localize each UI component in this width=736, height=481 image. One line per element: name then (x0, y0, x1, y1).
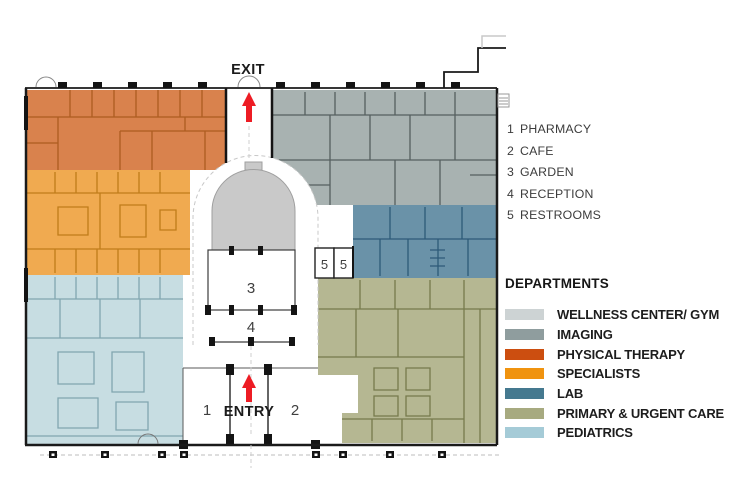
legend-label: SPECIALISTS (557, 366, 640, 381)
departments-legend: DEPARTMENTS WELLNESS CENTER/ GYM IMAGING… (505, 276, 724, 443)
legend-item-primary-urgent-care: PRIMARY & URGENT CARE (505, 403, 724, 423)
key-item-cafe: 2CAFE (507, 141, 601, 163)
region-primary-urgent-care (318, 278, 497, 443)
legend-label: IMAGING (557, 327, 613, 342)
key-label: CAFE (520, 144, 554, 158)
key-number: 4 (507, 184, 515, 206)
key-label: RECEPTION (520, 187, 594, 201)
room-number-restroom-b: 5 (340, 257, 347, 272)
room-number-reception: 4 (247, 319, 255, 336)
legend-label: PEDIATRICS (557, 425, 633, 440)
legend-swatch-pediatrics (505, 427, 544, 438)
region-pediatrics (27, 275, 183, 445)
key-item-reception: 4RECEPTION (507, 184, 601, 206)
key-number: 3 (507, 162, 515, 184)
legend-item-physical-therapy: PHYSICAL THERAPY (505, 344, 724, 364)
legend-label: PRIMARY & URGENT CARE (557, 406, 724, 421)
south-colonnade (40, 445, 500, 468)
room-number-restroom-a: 5 (321, 257, 328, 272)
legend-swatch-primary-urgent-care (505, 408, 544, 419)
legend-item-specialists: SPECIALISTS (505, 364, 724, 384)
region-specialists (27, 170, 190, 275)
key-item-restrooms: 5RESTROOMS (507, 205, 601, 227)
legend-item-lab: LAB (505, 384, 724, 404)
key-number: 1 (507, 119, 515, 141)
legend-item-wellness: WELLNESS CENTER/ GYM (505, 305, 724, 325)
room-number-garden: 3 (247, 280, 255, 297)
dome-apex-detail (245, 162, 262, 170)
entry-arrow-icon (242, 374, 256, 402)
legend-swatch-specialists (505, 368, 544, 379)
departments-title: DEPARTMENTS (505, 276, 724, 291)
numbered-key: 1PHARMACY 2CAFE 3GARDEN 4RECEPTION 5REST… (507, 119, 601, 227)
legend-item-imaging: IMAGING (505, 325, 724, 345)
legend-label: LAB (557, 386, 583, 401)
entry-label: ENTRY (224, 404, 275, 420)
exit-arrow-icon (242, 92, 256, 122)
atrium-dome (212, 170, 295, 250)
legend-label: PHYSICAL THERAPY (557, 347, 685, 362)
legend-swatch-lab (505, 388, 544, 399)
legend-swatch-wellness (505, 309, 544, 320)
key-label: GARDEN (520, 165, 574, 179)
legend-item-pediatrics: PEDIATRICS (505, 423, 724, 443)
exit-label: EXIT (231, 62, 265, 78)
key-item-pharmacy: 1PHARMACY (507, 119, 601, 141)
key-number: 5 (507, 205, 515, 227)
key-label: RESTROOMS (520, 208, 601, 222)
key-number: 2 (507, 141, 515, 163)
legend-label: WELLNESS CENTER/ GYM (557, 307, 719, 322)
room-number-pharmacy: 1 (203, 402, 211, 419)
room-number-cafe: 2 (291, 402, 299, 419)
key-item-garden: 3GARDEN (507, 162, 601, 184)
key-label: PHARMACY (520, 122, 591, 136)
legend-swatch-imaging (505, 329, 544, 340)
region-physical-therapy (27, 90, 226, 170)
legend-swatch-physical-therapy (505, 349, 544, 360)
floor-plan-page: EXIT ENTRY 1 2 3 4 5 5 1PHARMACY 2CAFE 3… (0, 0, 736, 481)
